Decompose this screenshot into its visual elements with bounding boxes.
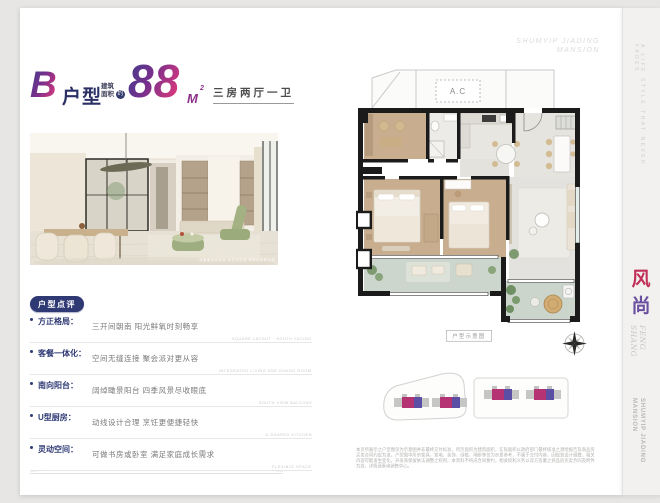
side-brand: SHUMYIP JIADINGMANSION	[630, 398, 646, 474]
review-item-label: 南向阳台：	[38, 380, 92, 391]
bullet-dot-icon	[30, 446, 33, 449]
review-item-label: 方正格局：	[38, 316, 92, 327]
area-unit: M	[187, 91, 198, 106]
side-brand-line1: SHUMYIP JIADING	[639, 398, 645, 463]
review-item-label: 客餐一体化：	[38, 348, 92, 359]
footer-left-mark: —— · ·	[30, 469, 42, 473]
review-item-label: U型厨房：	[38, 412, 92, 423]
review-item: 方正格局：三开间朝南 阳光鲜氧时刻畅享 SQUARE LAYOUT · SOUT…	[30, 316, 312, 343]
side-pinyin: FENGSHANG	[629, 325, 647, 371]
review-item-text: 动线设计合理 烹饪更便捷轻快	[92, 418, 199, 427]
review-item-note: INTEGRATED LIVING AND DINING ROOM	[219, 369, 312, 373]
review-item-note: SQUARE LAYOUT · SOUTH FACING	[232, 337, 312, 341]
diagram-tag: 户型示意图	[446, 330, 492, 342]
review-item: U型厨房：动线设计合理 烹饪更便捷轻快 U-SHAPED KITCHEN	[30, 412, 312, 439]
area-prefix-line1: 建筑	[101, 83, 114, 90]
side-pinyin-shang: SHANG	[629, 325, 638, 357]
side-char-shang: 尚	[628, 297, 654, 316]
bullet-dot-icon	[30, 350, 33, 353]
floor-plan: A.C	[356, 64, 592, 330]
layout-tag: 三房两厅一卫	[213, 85, 294, 104]
ac-label: A.C	[450, 87, 466, 96]
review-item-note: U-SHAPED KITCHEN	[265, 433, 312, 437]
review-list: 方正格局：三开间朝南 阳光鲜氧时刻畅享 SQUARE LAYOUT · SOUT…	[30, 316, 312, 476]
window-wall	[254, 141, 278, 241]
disclaimer-text: 本页所展示之户型图仅为示意图并非最终交付标准，所示面积为建筑面积，实际面积以政府…	[356, 448, 595, 470]
side-brand-line2: MANSION	[631, 398, 637, 432]
compass-icon	[561, 330, 588, 357]
review-item-label: 灵动空间：	[38, 444, 92, 455]
review-item-text: 三开间朝南 阳光鲜氧时刻畅享	[92, 322, 199, 331]
area-approx-badge: 约	[116, 90, 125, 99]
bullet-dot-icon	[30, 382, 33, 385]
site-plan	[378, 366, 590, 430]
review-item-note: SOUTH VIEW BALCONY	[258, 401, 312, 405]
side-char-feng: 风	[628, 270, 654, 289]
area-value: 88	[128, 58, 179, 104]
interior-photo: 效果图仅供参考 非交付标准 具体以实际为准	[30, 133, 278, 265]
top-watermark: SHUMYIP JIADING MANSION	[516, 37, 600, 55]
review-item-text: 空间无缝连接 聚会派对更从容	[92, 354, 199, 363]
unit-word: 户型	[62, 82, 102, 109]
footer-right-mark: · · ——	[271, 469, 283, 473]
watermark-line1: SHUMYIP JIADING	[516, 37, 600, 46]
interior-photo-art	[30, 133, 278, 265]
bullet-dot-icon	[30, 318, 33, 321]
review-item: 客餐一体化：空间无缝连接 聚会派对更从容 INTEGRATED LIVING A…	[30, 348, 312, 375]
area-prefix-line2: 面积	[101, 91, 114, 98]
unit-letter: B	[30, 66, 57, 103]
side-tagline: A LIFE STYLE THAT NEVER FADES	[633, 44, 645, 174]
watermark-line2: MANSION	[516, 46, 600, 55]
review-badge: 户型点评	[30, 296, 84, 312]
photo-caption: 效果图仅供参考 非交付标准 具体以实际为准	[199, 257, 275, 262]
bullet-dot-icon	[30, 414, 33, 417]
review-item-text: 可做书房或卧室 满足家庭成长需求	[92, 450, 215, 459]
review-item-text: 阔绰瞰景阳台 四季风景尽收眼底	[92, 386, 207, 395]
review-item: 南向阳台：阔绰瞰景阳台 四季风景尽收眼底 SOUTH VIEW BALCONY	[30, 380, 312, 407]
marble-shelf-left	[182, 161, 208, 225]
area-prefix: 建筑 面积	[101, 83, 114, 99]
green-coffee-table	[172, 232, 204, 251]
area-unit-sup: 2	[200, 85, 204, 92]
side-pinyin-feng: FENG	[638, 325, 647, 350]
footer-rule: —— · · · · ——	[30, 466, 283, 474]
